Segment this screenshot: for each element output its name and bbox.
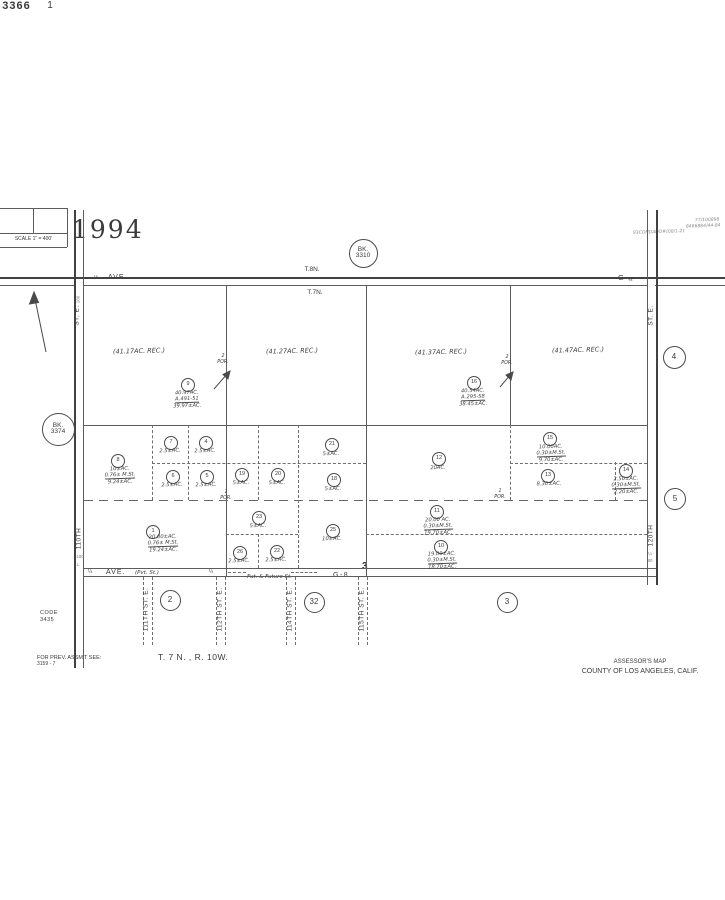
map-line (74, 210, 76, 668)
map-line (33, 208, 34, 233)
map-line (84, 568, 656, 569)
tax-code-value: 3435 (40, 617, 54, 623)
parcel-acreage: 20.00±AC.0.76± M.St.19.24±AC. (131, 533, 196, 554)
recorded-acreage-label: (41.27AC. REC.) (247, 347, 337, 356)
portion-label: 2POR. (211, 354, 235, 365)
parcel-acreage-line: 5±AC. (226, 522, 290, 530)
portion-label: 1POR. (214, 490, 238, 501)
distance-tick: 100 (74, 555, 86, 560)
tax-code-label: CODE (40, 610, 58, 616)
township-north-label: T.8N. (292, 266, 332, 273)
parcel-acreage-line: 38.45±AC. (441, 400, 505, 408)
book-ref-line: 3310 (356, 253, 370, 260)
map-line (655, 285, 725, 286)
county-title: COUNTY OF LOS ANGELES, CALIF. (560, 668, 720, 676)
distance-tick: 160 (77, 293, 82, 305)
parcel-acreage: 5±AC. (245, 479, 309, 487)
recording-note: 8466884/44-84 (686, 224, 721, 230)
township-south-label: T.7N. (295, 289, 335, 296)
map-dashed-line (152, 425, 153, 500)
book-ref-line: 3374 (51, 429, 65, 436)
parcel-acreage: 5±AC. (299, 450, 363, 458)
quarter-corner-tick: ¼ (86, 570, 94, 576)
portion-label: 1POR. (488, 489, 512, 500)
map-line (0, 247, 67, 248)
section-circle: 4 (663, 346, 686, 369)
book-reference-circle: BK.3374 (42, 413, 75, 446)
parcel-acreage: 40.54AC.A.295-5838.45±AC. (441, 387, 506, 408)
parcel-acreage-line: 8.30±AC. (517, 480, 581, 488)
parcel-acreage: 10±AC. (300, 535, 364, 543)
page-number: 1 (33, 0, 67, 11)
map-dashed-line (226, 534, 298, 535)
parcel-acreage: 20.00 AC.0.30±M.St.19.70±AC. (406, 516, 471, 537)
map-dashed-line (228, 572, 246, 573)
scale-label: SCALE 1" = 400' (0, 237, 67, 243)
map-line (84, 576, 656, 577)
future-street-line (152, 577, 153, 645)
parcel-acreage-line: 2.20±AC. (594, 488, 658, 496)
future-street-label: 111TH ST. E. (141, 575, 152, 645)
map-dashed-line (291, 572, 317, 573)
parcel-acreage: 10.00AC.0.30±M.St.9.70±AC. (519, 443, 584, 464)
map-dashed-line (258, 425, 259, 500)
assessor-map-sheet: 3366 1 SCALE 1" = 400' 1994 77/100898 84… (0, 0, 725, 900)
map-line (0, 285, 74, 286)
portion-label-line: POR. (214, 496, 238, 502)
north-arrow (35, 299, 46, 352)
parcel-acreage: 20AC. (406, 464, 470, 472)
map-dashed-line (152, 463, 366, 464)
parcel-acreage-line: 5±AC. (245, 479, 309, 487)
map-dashed-line (298, 425, 299, 568)
parcel-acreage-line: 19.24±AC. (131, 546, 195, 554)
book-number: 3366 (0, 0, 33, 12)
map-line (0, 233, 67, 234)
map-longdash-line (84, 500, 647, 501)
portion-label-line: POR. (488, 495, 512, 501)
parcel-acreage-line: 2.5±AC. (173, 447, 237, 455)
section-circle: 2 (160, 590, 181, 611)
parcel-acreage: 40.97AC.A.491-5139.97±AC. (155, 389, 220, 410)
portion-label-line: POR. (495, 361, 519, 367)
section-circle: 3 (497, 592, 518, 613)
township-range-label: T. 7 N. , R. 10W. (158, 653, 228, 662)
distance-tick: L (72, 563, 84, 568)
portion-label-line: POR. (211, 360, 235, 366)
map-dashed-line (188, 425, 189, 500)
map-line (226, 285, 227, 576)
portion-label: 2POR. (495, 355, 519, 366)
parcel-acreage-line: 18.70±AC. (410, 563, 474, 571)
recorded-acreage-label: (41.37AC. REC.) (396, 348, 486, 357)
future-street-label: 115TH ST. E. (357, 575, 368, 645)
distance-tick: 80 (644, 559, 656, 564)
book-reference-circle: BK.3310 (349, 239, 378, 268)
section-circle: 32 (304, 592, 325, 613)
map-line (0, 277, 725, 279)
parcel-acreage: 2.50±AC.0.30±M.St.2.20±AC. (594, 475, 659, 496)
parcel-acreage-line: 10±AC. (300, 535, 364, 543)
map-line (366, 285, 367, 576)
assessor-map-title: ASSESSOR'S MAP (598, 659, 682, 666)
parcel-acreage: 5±AC. (226, 522, 290, 530)
distance-tick: ¼ (644, 552, 656, 557)
section-circle: 5 (664, 488, 686, 510)
parcel-acreage: 8.30±AC. (517, 480, 581, 488)
parcel-acreage-line: 20AC. (406, 464, 470, 472)
parcel-acreage: 19.00±AC.0.30±M.St.18.70±AC. (410, 550, 475, 571)
map-line (83, 210, 84, 668)
recorded-acreage-label: (41.17AC. REC.) (94, 347, 184, 356)
parcel-acreage-line: 5±AC. (299, 450, 363, 458)
parcel-acreage-line: 19.70±AC. (406, 529, 470, 537)
parcel-acreage: 5±AC. (301, 485, 365, 493)
parcel-acreage-line: 5±AC. (301, 485, 365, 493)
future-street-label: 112TH ST. E. (215, 575, 226, 645)
recorded-acreage-label: (41.47AC. REC.) (533, 346, 623, 355)
recording-note: 93CONDADO#(00/1-21 (633, 230, 685, 237)
parcel-acreage-line: 39.97±AC. (155, 402, 219, 410)
map-line (647, 210, 648, 585)
map-line (67, 208, 68, 247)
future-street-label: 114TH ST. E. (285, 575, 296, 645)
parcel-acreage: 2.5±AC. (173, 447, 237, 455)
north-arrow-head (30, 292, 39, 304)
map-line (656, 210, 658, 585)
prev-assessment-ref: 3159 - 7 (37, 662, 55, 668)
